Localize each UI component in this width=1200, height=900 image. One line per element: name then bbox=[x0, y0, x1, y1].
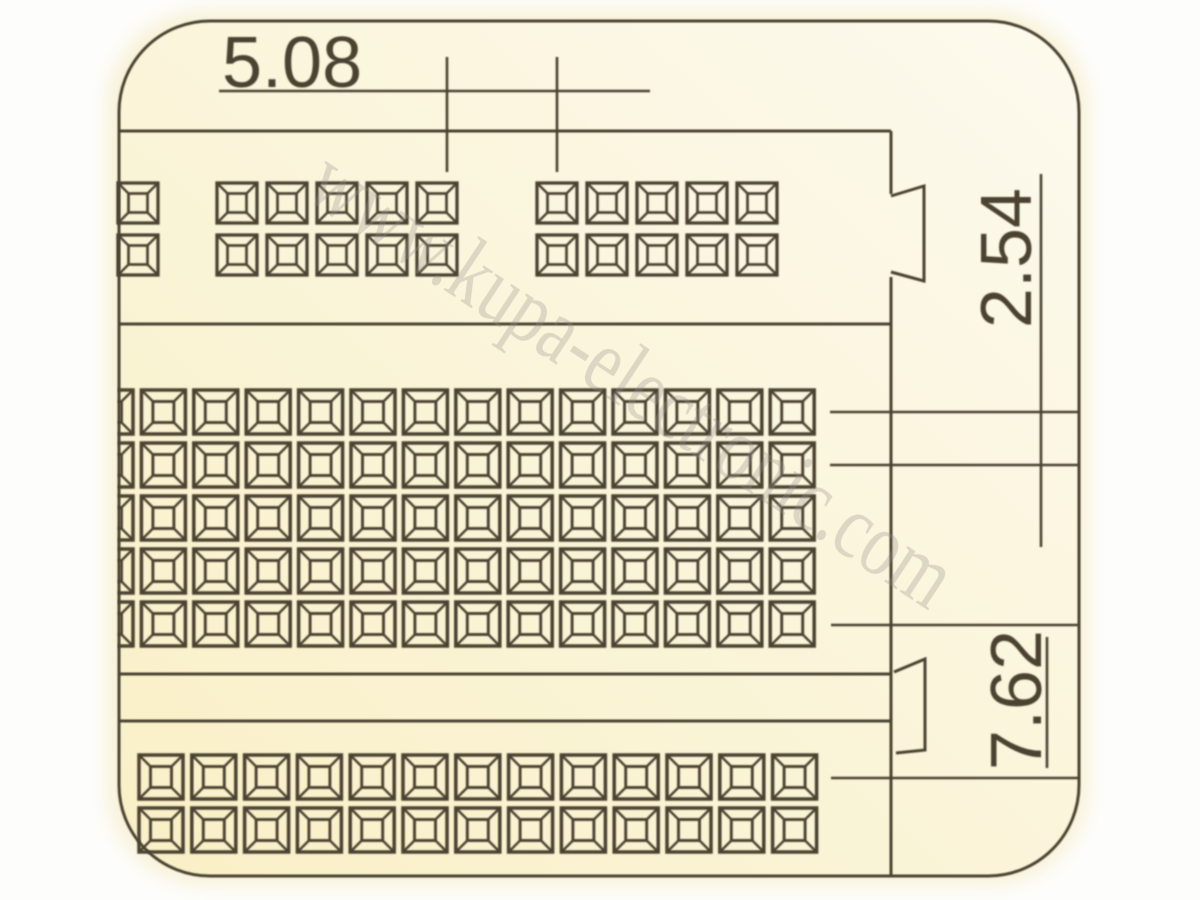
svg-text:7.62: 7.62 bbox=[977, 630, 1057, 770]
svg-text:5.08: 5.08 bbox=[222, 23, 362, 103]
svg-text:2.54: 2.54 bbox=[967, 188, 1047, 328]
